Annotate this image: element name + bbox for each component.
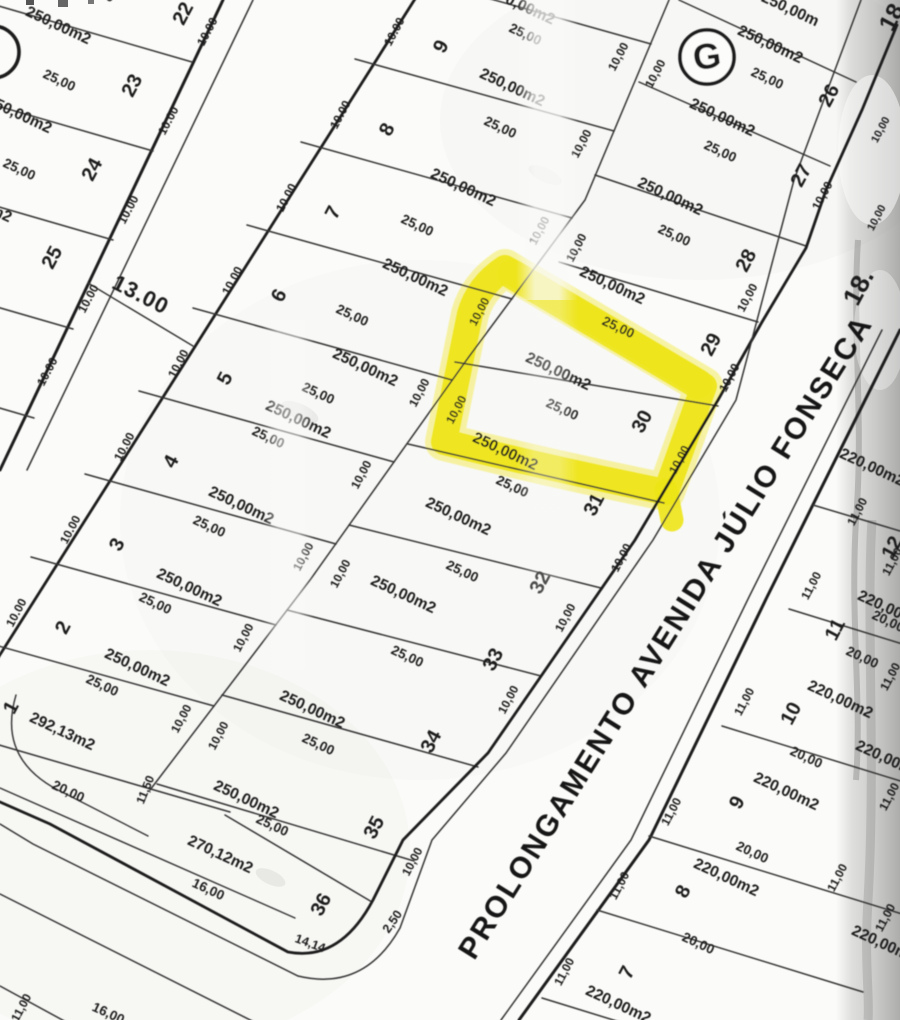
svg-text:G: G <box>690 34 723 79</box>
